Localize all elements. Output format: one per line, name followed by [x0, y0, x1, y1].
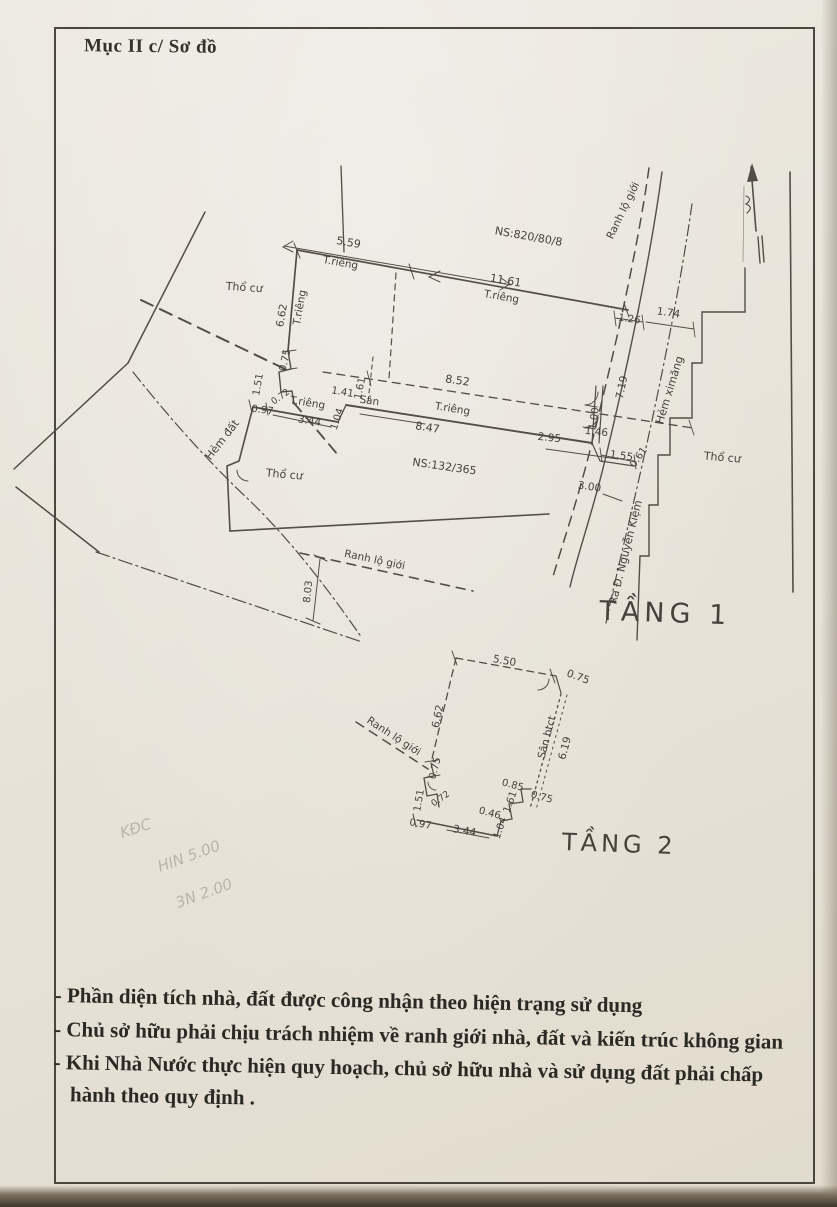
ns-upper-label: NS:820/80/8 — [494, 224, 564, 249]
legal-notes: - Phần diện tích nhà, đất được công nhận… — [53, 980, 813, 1125]
trieng-top-left: T.riêng — [321, 254, 359, 272]
photo-edge-right — [821, 0, 837, 1207]
thocu-house: Thổ cư — [264, 466, 304, 482]
ns-lower-label: NS:132/365 — [412, 456, 478, 478]
floor2-title: TẦNG 2 — [561, 824, 678, 860]
floor1-labels: NS:820/80/8 5.59 T.riêng 11.61 T.riêng T… — [203, 180, 743, 631]
dim-1-51-f2: 1.51 — [412, 789, 427, 813]
ranh-lo-gioi-bottom: Ranh lộ giới — [343, 548, 406, 573]
north-arrow-icon — [743, 163, 764, 263]
dim-6-62: 6.62 — [274, 303, 290, 328]
ranh-lo-gioi-f2: Ranh lộ giới — [364, 715, 422, 759]
floor1-title: TẦNG 1 — [598, 592, 732, 632]
dim-0-72-f2: 0.72 — [430, 790, 452, 810]
dim-5-50: 5.50 — [492, 653, 517, 669]
hem-dat-label: Hẻm đất — [203, 417, 243, 463]
ranh-lo-gioi-canal: Ranh lộ giới — [604, 180, 642, 241]
dim-0-97: 0.97 — [251, 404, 275, 418]
dim-11-61: 11.61 — [489, 271, 522, 289]
dim-0-75-left-f2: 0.75 — [428, 756, 444, 780]
dim-5-59: 5.59 — [335, 234, 361, 251]
dim-1-26: 1.26 — [618, 313, 642, 327]
thocu-right: Thổ cư — [702, 449, 742, 465]
dim-0-75-top: 0.75 — [565, 668, 591, 687]
dim-0-75-right-f2: 0.75 — [529, 789, 553, 805]
trieng-top-right: T.riêng — [482, 288, 520, 306]
dim-8-47: 8.47 — [414, 419, 440, 436]
dim-1-61-f2: 1.61 — [502, 790, 520, 815]
dim-1-46: 1.46 — [584, 425, 609, 439]
dim-1-55: 1.55 — [609, 448, 634, 463]
dim-1-74: 1.74 — [656, 305, 681, 320]
floor2-linework — [356, 651, 567, 838]
dim-1-51: 1.51 — [251, 373, 266, 397]
dim-0-97-f2: 0.97 — [409, 817, 433, 832]
dim-0-46: 0.46 — [477, 805, 501, 821]
photo-edge-bottom — [0, 1185, 837, 1207]
dim-1-04: 1.04 — [329, 407, 346, 432]
thocu-upper-left: Thổ cư — [224, 280, 264, 296]
dim-2-95: 2.95 — [537, 431, 562, 445]
dim-1-41: 1.41 — [331, 385, 355, 400]
san-label: Sân — [359, 394, 380, 409]
dim-8-03: 8.03 — [302, 580, 315, 603]
handwritten-note-2: HIN 5.00 — [155, 837, 222, 876]
trieng-mid-wall: T.riêng — [433, 400, 471, 418]
dim-8-52: 8.52 — [444, 372, 470, 388]
dim-6-62-f2: 6.62 — [430, 704, 447, 729]
scanned-document-page: Mục II c/ Sơ đồ — [0, 0, 837, 1207]
dim-3-00: 3.00 — [577, 479, 602, 494]
dim-7-19: 7.19 — [614, 375, 631, 400]
dim-6-19: 6.19 — [556, 735, 574, 761]
handwritten-note-1: KĐC — [118, 815, 154, 842]
dim-3-44: 3.44 — [297, 413, 322, 429]
handwritten-notes: KĐC HIN 5.00 3N 2.00 — [118, 815, 235, 912]
dim-3-44-f2: 3.44 — [452, 823, 477, 839]
note-line-3: - Khi Nhà Nước thực hiện quy hoạch, chủ … — [53, 1047, 812, 1123]
handwritten-note-3: 3N 2.00 — [173, 875, 235, 912]
trieng-344-wall: T.riêng — [288, 394, 326, 412]
floor2-labels: 5.50 0.75 Sân btct 6.19 6.62 Ranh lộ giớ… — [364, 653, 677, 860]
